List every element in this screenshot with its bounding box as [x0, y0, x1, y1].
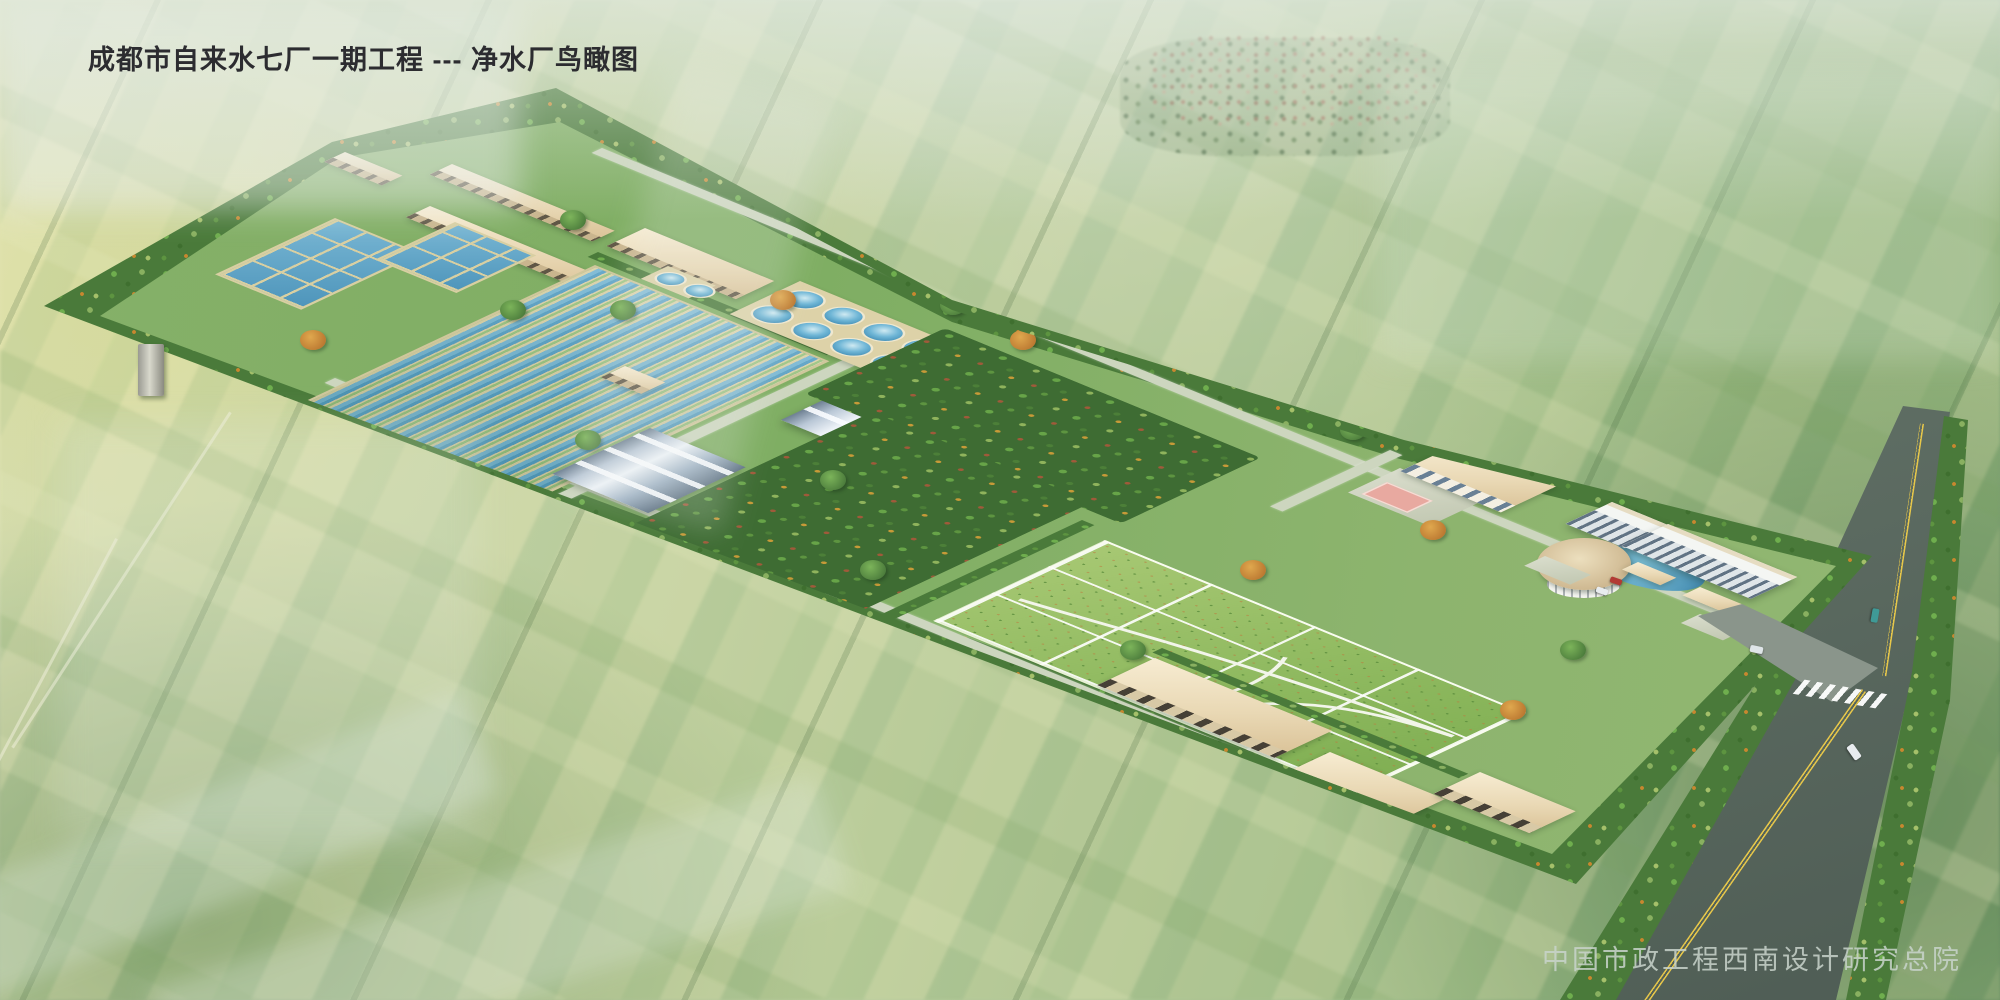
tree-autumn: [1240, 560, 1266, 580]
drawing-title: 成都市自来水七厂一期工程 --- 净水厂鸟瞰图: [88, 38, 639, 77]
tree: [1560, 640, 1586, 660]
tree-autumn: [1500, 700, 1526, 720]
rendering-canvas: 成都市自来水七厂一期工程 --- 净水厂鸟瞰图 中国市政工程西南设计研究总院: [0, 0, 2000, 1000]
elevated-water-tank: [138, 344, 164, 396]
garage-doors: [1434, 788, 1543, 833]
building-facade: [324, 158, 390, 186]
workshop-building-3: [1434, 772, 1576, 833]
tree: [500, 300, 526, 320]
tree: [560, 210, 586, 230]
tree: [575, 430, 601, 450]
design-institute-credit: 中国市政工程西南设计研究总院: [1542, 938, 1962, 977]
auxiliary-building: [324, 152, 402, 185]
village-rooftops: [1150, 34, 1435, 126]
tree: [1120, 640, 1146, 660]
filter-basin-grid-2: [375, 222, 536, 293]
tree-autumn: [770, 290, 796, 310]
tree: [610, 300, 636, 320]
tree: [820, 470, 846, 490]
tree-autumn: [300, 330, 326, 350]
tree: [860, 560, 886, 580]
tree-autumn: [1420, 520, 1446, 540]
